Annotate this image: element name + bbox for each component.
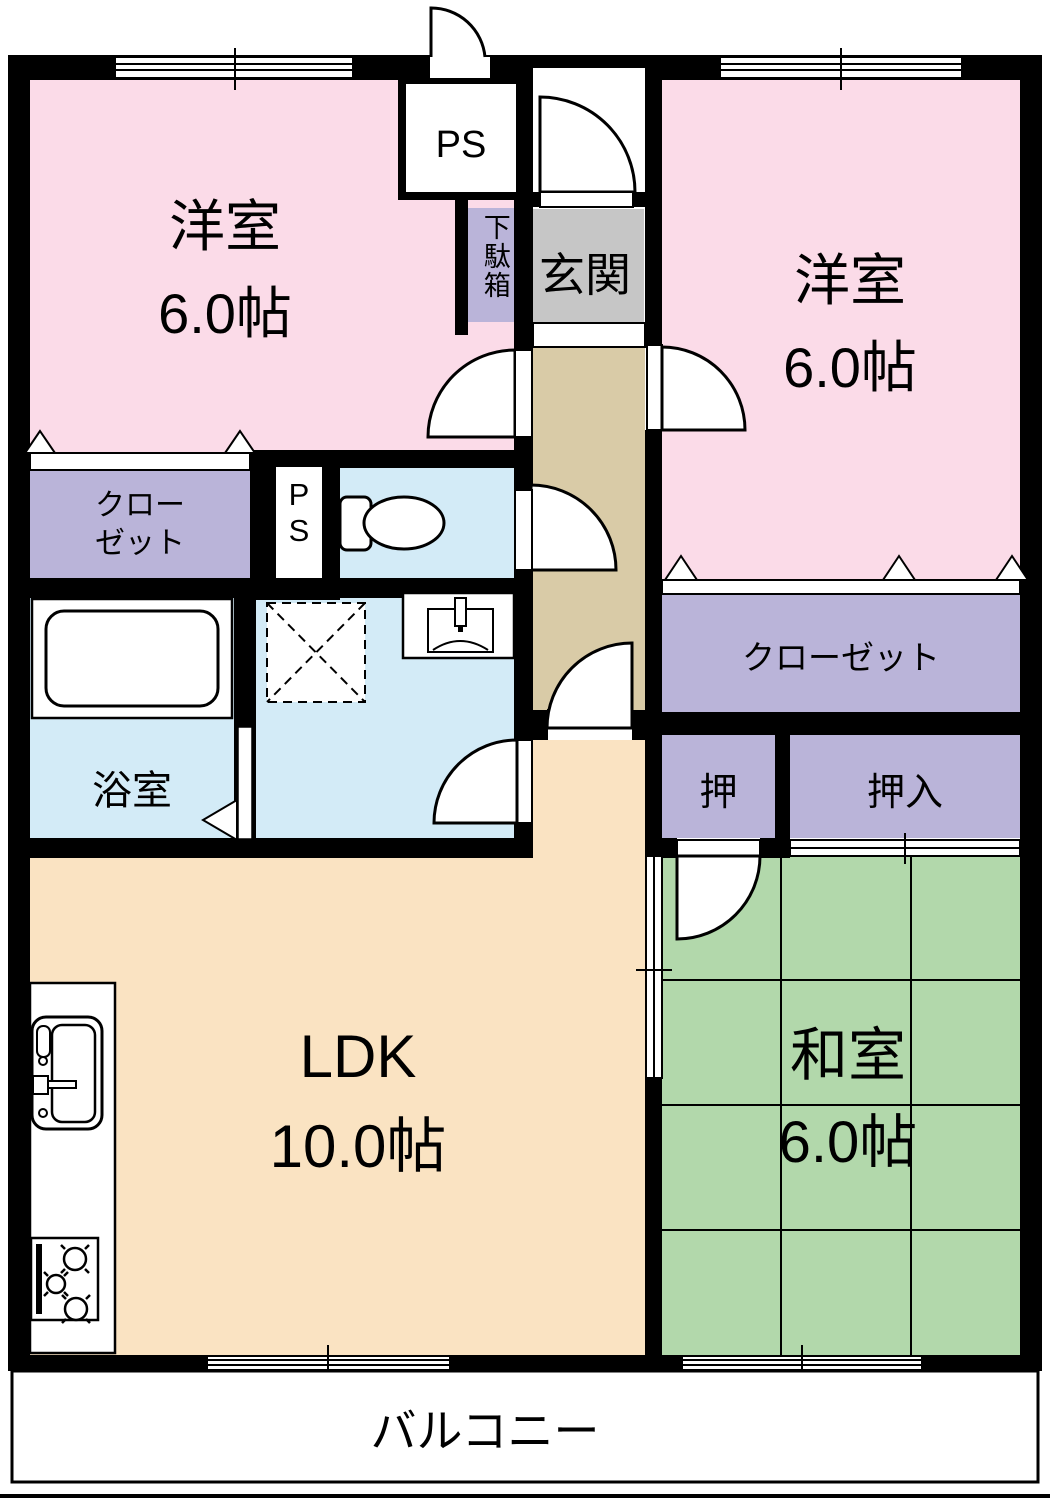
label-oshiire: 押入 (790, 764, 1020, 823)
label-western-room-right: 洋室 6.0帖 (700, 238, 1000, 412)
label-bathroom: 浴室 (30, 760, 234, 822)
western-right-door-leaf (647, 345, 662, 430)
entrance-door-leaf (540, 192, 633, 207)
label-entrance: 玄関 (526, 240, 644, 311)
label-closet-right: クローゼット (662, 632, 1020, 683)
label-western-room-left: 洋室 6.0帖 (75, 184, 375, 358)
kitchen-sink-icon (32, 1017, 102, 1129)
stove-icon (31, 1238, 98, 1323)
room-size: 6.0帖 (700, 325, 1000, 412)
label-shoe-cabinet: 下駄箱 (479, 213, 509, 300)
room-size: 6.0帖 (75, 271, 375, 358)
bathtub-icon (32, 599, 232, 718)
room-name: 洋室 (700, 238, 1000, 325)
floorplan-canvas: 洋室 6.0帖 洋室 6.0帖 PS 下駄箱 玄関 クロー ゼット P S 浴室… (0, 0, 1050, 1500)
label-oshi: 押 (662, 764, 775, 823)
toilet-door-leaf (515, 490, 532, 570)
washroom-sink-icon (403, 593, 514, 658)
label-pipe-space-top: PS (398, 116, 524, 175)
meter-door (430, 8, 490, 78)
label-pipe-space-mid: P S (276, 477, 322, 548)
ldk-arm-floor (533, 740, 645, 860)
entrance-step (533, 323, 645, 347)
bath-door-leaf (238, 727, 252, 839)
western-left-door-leaf (515, 350, 532, 437)
japanese-room-door-leaf (677, 840, 760, 856)
label-closet-left: クロー ゼット (35, 487, 245, 562)
washing-machine-icon (267, 603, 365, 702)
label-ldk: LDK 10.0帖 (208, 1012, 508, 1192)
label-japanese-room: 和室 6.0帖 (698, 1012, 998, 1186)
room-name: 洋室 (75, 184, 375, 271)
toilet-icon (340, 497, 444, 550)
label-balcony: バルコニー (255, 1396, 715, 1467)
